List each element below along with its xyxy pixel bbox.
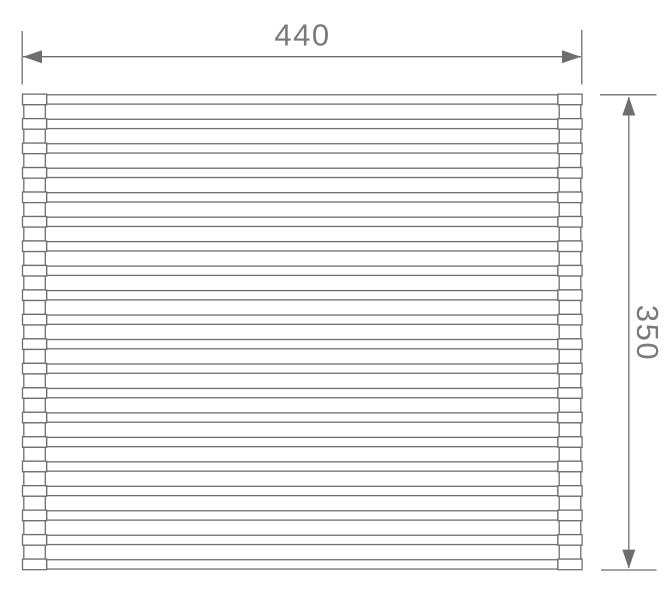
svg-text:440: 440 <box>274 18 330 53</box>
svg-text:350: 350 <box>630 305 665 361</box>
